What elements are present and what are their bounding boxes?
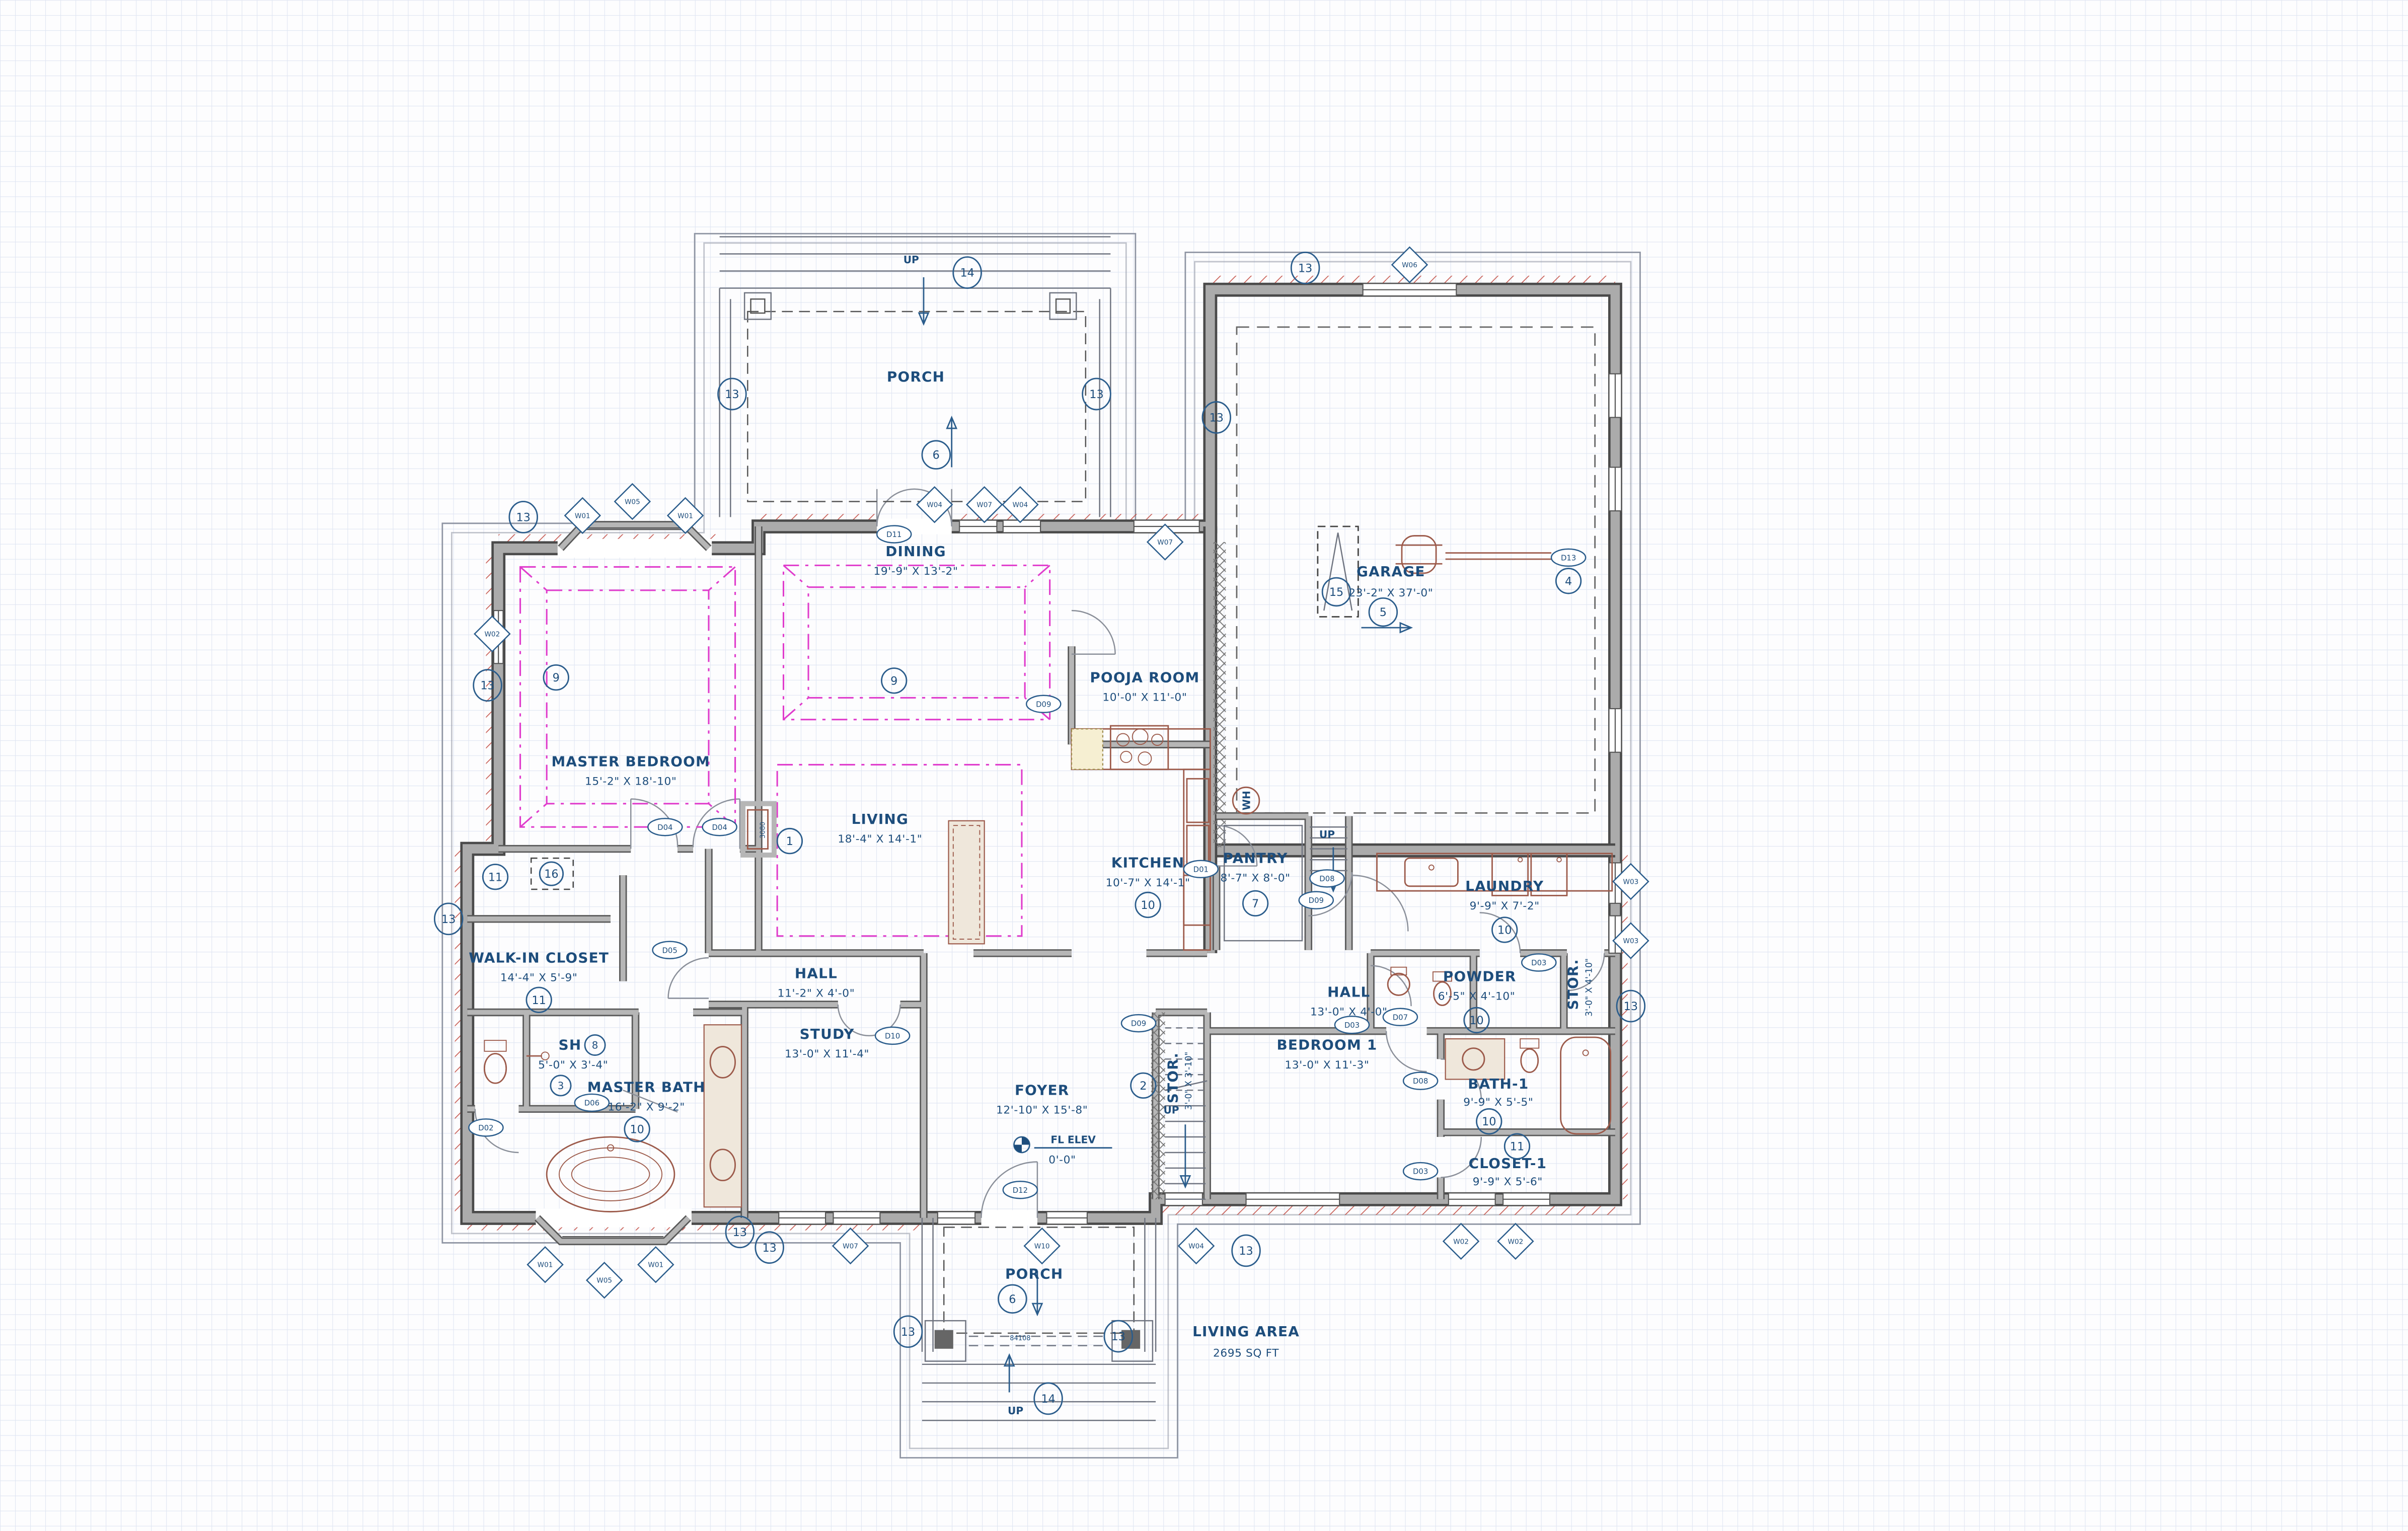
window-tag-w06-garage: W06 xyxy=(1402,261,1417,269)
window-tag-w07-study: W07 xyxy=(843,1243,858,1251)
door-tag-d13: D13 xyxy=(1561,553,1576,562)
dims-foyer: 12'-10" X 15'-8" xyxy=(996,1104,1088,1117)
tag-9-dining: 9 xyxy=(890,674,897,687)
tag-10-bath1: 10 xyxy=(1482,1115,1496,1128)
kitchen-island xyxy=(949,821,985,944)
window-tag-w03-laundry-a: W03 xyxy=(1623,878,1638,886)
door-tag-d05: D05 xyxy=(662,946,677,955)
label-pantry: PANTRY xyxy=(1223,850,1288,866)
fl-elev-value: 0'-0" xyxy=(1048,1154,1076,1167)
tag-7-pantry: 7 xyxy=(1252,897,1259,910)
window-tag-w10-foyer: W10 xyxy=(1034,1243,1050,1251)
tag-13-garage-top: 13 xyxy=(1298,262,1312,275)
door-tag-d12: D12 xyxy=(1013,1186,1028,1195)
dims-study: 13'-0" X 11'-4" xyxy=(785,1048,869,1060)
tag-10-powder: 10 xyxy=(1469,1014,1483,1027)
tag-14-bottom: 14 xyxy=(1041,1393,1055,1406)
tag-13-bottom-right: 13 xyxy=(1239,1245,1253,1258)
window-tag-w04-porch-b: W04 xyxy=(1012,501,1028,509)
window-tag-w04-bottom: W04 xyxy=(1188,1243,1204,1251)
tag-9-master-bedroom: 9 xyxy=(553,671,560,684)
window-tag-w05-bath-bay: W05 xyxy=(596,1277,612,1285)
label-walkin: WALK-IN CLOSET xyxy=(469,949,609,966)
stairs-center-up-label: UP xyxy=(1319,828,1335,840)
window-tag-w01-mb-bay-l: W01 xyxy=(575,512,590,520)
label-hall-left: HALL xyxy=(795,965,838,981)
tag-2-stairs: 2 xyxy=(1140,1080,1147,1093)
corner-cabinet xyxy=(1072,729,1103,769)
porch-step-dim: 84108 xyxy=(1010,1335,1030,1342)
tag-13-left-lower: 13 xyxy=(441,913,456,926)
tag-10-kitchen: 10 xyxy=(1141,899,1155,912)
tag-16-attic-access: 16 xyxy=(544,868,558,881)
tag-6-top-porch: 6 xyxy=(933,449,940,462)
label-kitchen: KITCHEN xyxy=(1111,855,1185,871)
tag-14-top: 14 xyxy=(960,267,974,280)
fire-wall-crosshatch xyxy=(1214,542,1226,848)
tag-15-garage: 15 xyxy=(1329,586,1343,599)
label-powder: POWDER xyxy=(1443,968,1517,985)
dims-bath1: 9'-9" X 5'-5" xyxy=(1463,1096,1533,1109)
dims-garage: 23'-2" X 37'-0" xyxy=(1348,587,1433,599)
tag-5-garage: 5 xyxy=(1380,606,1387,619)
label-garage: GARAGE xyxy=(1357,563,1425,580)
living-area-value: 2695 SQ FT xyxy=(1213,1347,1279,1359)
door-tag-d09-pooja: D09 xyxy=(1036,700,1051,709)
fireplace-dim: 3080 xyxy=(759,822,767,838)
tag-13-study-bottom: 13 xyxy=(762,1242,776,1255)
tag-6-bottom-porch: 6 xyxy=(1009,1293,1016,1306)
door-tag-d07: D07 xyxy=(1393,1013,1408,1022)
dims-walkin: 14'-4" X 5'-9" xyxy=(500,972,578,984)
label-porch-top: PORCH xyxy=(887,368,945,385)
porch-top-up-label: UP xyxy=(904,254,919,266)
water-heater-label: WH xyxy=(1240,791,1252,810)
dims-shower: 5'-0" X 3'-4" xyxy=(538,1059,608,1071)
door-tag-d02: D02 xyxy=(478,1123,493,1132)
door-tag-d03-stor: D03 xyxy=(1531,958,1546,967)
dims-powder: 6'-5" X 4'-10" xyxy=(1438,990,1516,1003)
dims-closet1: 9'-9" X 5'-6" xyxy=(1473,1176,1543,1188)
label-living: LIVING xyxy=(852,811,909,827)
door-tag-d03-powder: D03 xyxy=(1344,1021,1360,1030)
window-tag-w02-closet1-b: W02 xyxy=(1508,1238,1523,1246)
porch-bottom-up-label: UP xyxy=(1008,1405,1023,1417)
fl-elev-label: FL ELEV xyxy=(1050,1133,1096,1145)
label-dining: DINING xyxy=(885,543,946,560)
bath1-vanity xyxy=(1446,1039,1505,1079)
dims-bedroom1: 13'-0" X 11'-3" xyxy=(1285,1059,1369,1071)
dims-master-bath: 16'-2" X 9'-2" xyxy=(608,1101,685,1113)
tag-3-shower: 3 xyxy=(558,1080,564,1092)
door-tag-d09-hall: D09 xyxy=(1309,896,1324,905)
dims-pantry: 8'-7" X 8'-0" xyxy=(1220,872,1290,885)
dims-laundry: 9'-9" X 7'-2" xyxy=(1470,900,1540,912)
dims-hall-left: 11'-2" X 4'-0" xyxy=(778,987,855,1000)
label-stor-right: STOR. xyxy=(1565,959,1582,1010)
label-hall-right: HALL xyxy=(1327,984,1370,1001)
dims-dining: 19'-9" X 13'-2" xyxy=(874,565,958,578)
label-bath1: BATH-1 xyxy=(1468,1076,1529,1092)
dims-living: 18'-4" X 14'-1" xyxy=(838,833,922,846)
label-foyer: FOYER xyxy=(1015,1082,1069,1098)
door-tag-d08-bath1: D08 xyxy=(1413,1077,1428,1086)
label-porch-bottom: PORCH xyxy=(1005,1266,1063,1282)
master-vanity xyxy=(704,1025,741,1207)
window-tag-w01-bath-bay-r: W01 xyxy=(648,1261,663,1269)
tag-13-porch-bottom-right: 13 xyxy=(1111,1330,1125,1343)
window-tag-w07-pooja: W07 xyxy=(1157,539,1173,547)
tag-11-vestibule: 11 xyxy=(488,871,502,884)
label-stor-stairs: STOR. xyxy=(1164,1052,1181,1103)
tag-10-laundry: 10 xyxy=(1497,924,1512,937)
dims-master-bedroom: 15'-2" X 18'-10" xyxy=(585,776,676,788)
tag-13-mb-bay: 13 xyxy=(516,511,531,524)
label-pooja: POOJA ROOM xyxy=(1090,669,1199,685)
window-tag-w03-laundry-b: W03 xyxy=(1623,937,1638,945)
tag-11-walkin: 11 xyxy=(532,994,546,1007)
label-study: STUDY xyxy=(800,1026,855,1042)
window-tag-w01-bath-bay-l: W01 xyxy=(538,1261,553,1269)
window-tag-w05-mb-bay: W05 xyxy=(625,498,640,506)
tag-1-fireplace: 1 xyxy=(786,835,793,848)
tag-13-porch-left: 13 xyxy=(725,388,739,401)
dims-pooja: 10'-0" X 11'-0" xyxy=(1102,692,1187,704)
door-tag-d03-closet1: D03 xyxy=(1413,1167,1428,1176)
window-tag-w02-left: W02 xyxy=(484,630,500,638)
stairs-right-up-label: UP xyxy=(1163,1104,1179,1116)
label-closet1: CLOSET-1 xyxy=(1469,1155,1547,1172)
label-laundry: LAUNDRY xyxy=(1465,878,1544,894)
door-tag-d08-stairs: D08 xyxy=(1319,874,1334,883)
label-master-bedroom: MASTER BEDROOM xyxy=(552,753,710,770)
label-shower: SH xyxy=(559,1037,582,1053)
tag-13-right-wall: 13 xyxy=(1624,1000,1638,1013)
tag-8-shower: 8 xyxy=(592,1040,598,1051)
tag-13-porch-bottom-left: 13 xyxy=(901,1326,915,1339)
door-tag-d11: D11 xyxy=(886,530,901,539)
tag-13-left-wall: 13 xyxy=(480,679,494,693)
door-tag-d09-stor-stairs: D09 xyxy=(1131,1019,1146,1028)
floor-plan-drawing: WH UP 84108 UP UP U xyxy=(0,0,2408,1531)
window-tag-w04-porch-a: W04 xyxy=(927,501,942,509)
window-tag-w02-closet1-a: W02 xyxy=(1453,1238,1469,1246)
label-bedroom1: BEDROOM 1 xyxy=(1276,1037,1377,1053)
door-tag-d06: D06 xyxy=(584,1099,599,1108)
door-tag-d10: D10 xyxy=(885,1031,900,1040)
label-master-bath: MASTER BATH xyxy=(587,1079,706,1095)
door-tag-d01: D01 xyxy=(1193,865,1209,874)
dims-kitchen: 10'-7" X 14'-1" xyxy=(1106,877,1190,889)
dims-stor-stairs: 3'-0" X 3'-10" xyxy=(1184,1052,1194,1110)
living-area-label: LIVING AREA xyxy=(1192,1323,1300,1340)
dims-stor-right: 3'-0" X 4'-10" xyxy=(1585,958,1595,1017)
tag-4-garage: 4 xyxy=(1565,575,1572,588)
tag-13-bath-bay: 13 xyxy=(733,1226,747,1239)
door-tag-d04-b: D04 xyxy=(712,823,727,832)
tag-13-porch-right: 13 xyxy=(1089,388,1103,401)
window-tag-w01-mb-bay-r: W01 xyxy=(678,512,693,520)
window-tag-w07-porch: W07 xyxy=(976,501,992,509)
tag-11-closet1: 11 xyxy=(1510,1140,1524,1154)
tag-13-garage-left: 13 xyxy=(1210,411,1224,424)
door-tag-d04-a: D04 xyxy=(657,823,672,832)
tag-10-master-bath: 10 xyxy=(630,1123,644,1136)
